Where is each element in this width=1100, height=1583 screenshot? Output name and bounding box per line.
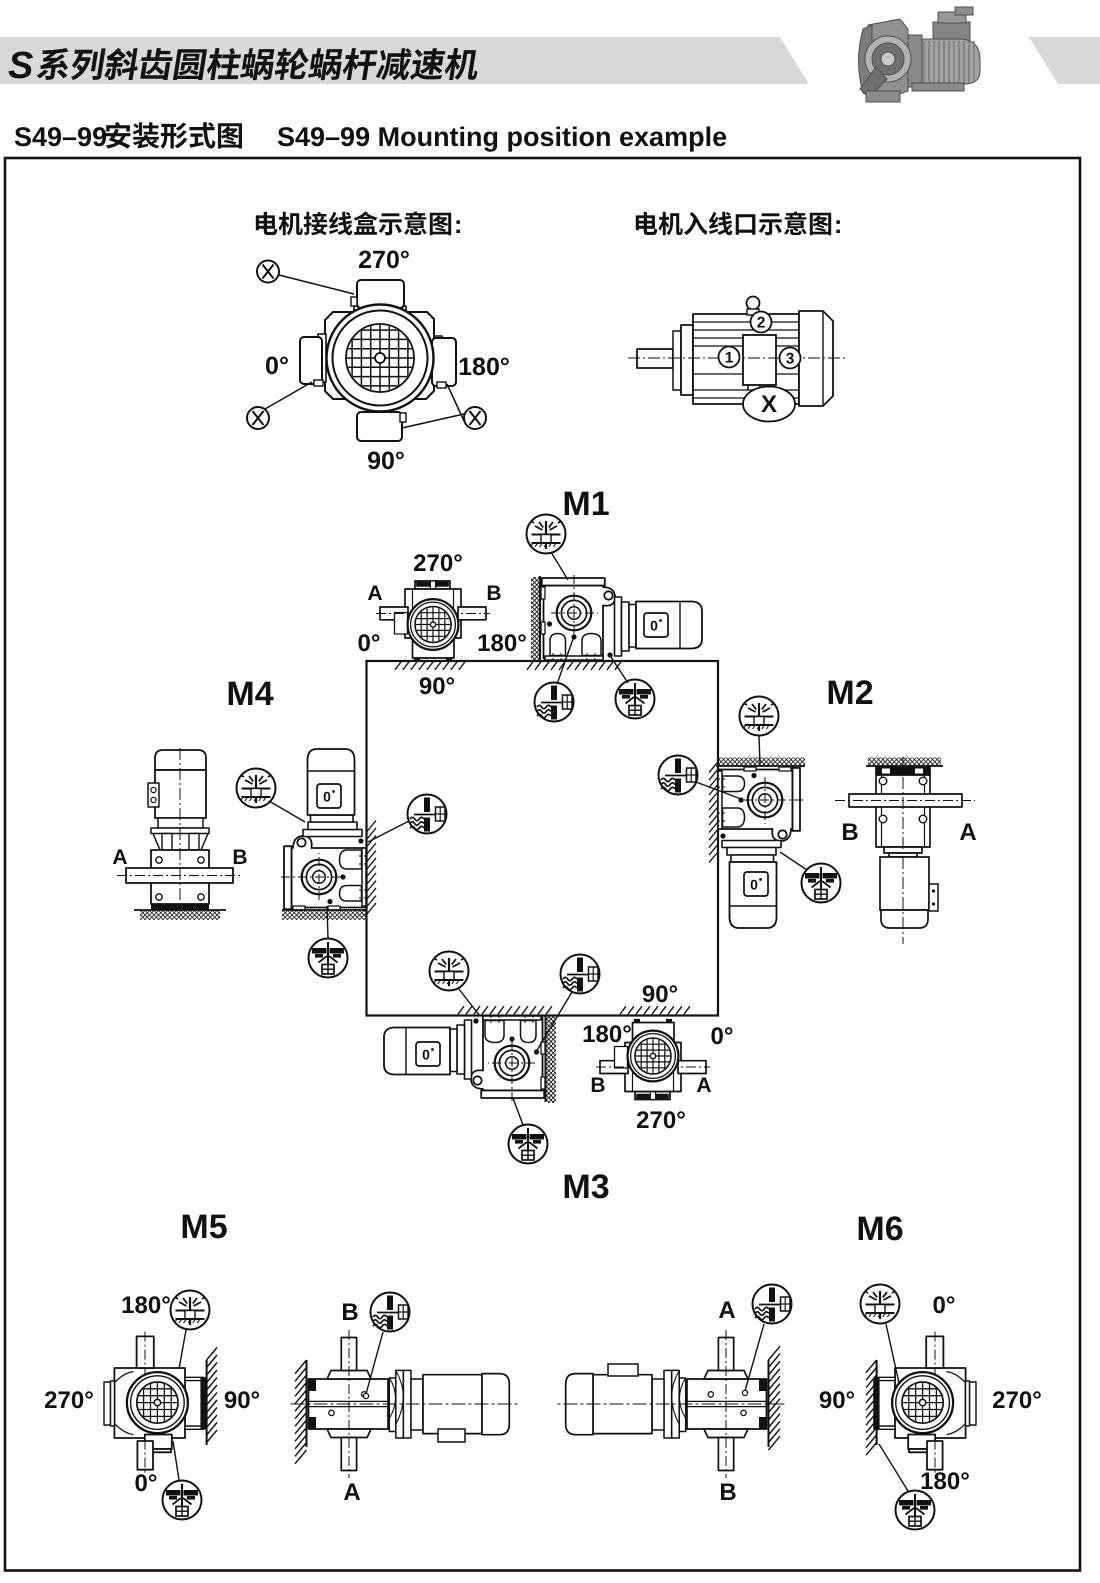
svg-text:B: B	[841, 819, 858, 846]
svg-text:M6: M6	[856, 1210, 903, 1248]
svg-text:180°: 180°	[920, 1468, 970, 1495]
svg-text::: :	[454, 211, 462, 239]
svg-text:0°: 0°	[358, 630, 381, 657]
svg-text:M2: M2	[826, 674, 873, 712]
svg-text:A: A	[959, 819, 976, 846]
svg-text:90°: 90°	[642, 981, 678, 1008]
svg-text:0°: 0°	[711, 1023, 734, 1050]
svg-text:X: X	[761, 391, 777, 418]
svg-text:270°: 270°	[44, 1387, 94, 1414]
svg-text:0°: 0°	[265, 352, 289, 380]
svg-text:0°: 0°	[933, 1292, 956, 1319]
svg-text:1: 1	[725, 350, 734, 367]
svg-text:180°: 180°	[477, 630, 527, 657]
svg-text:A: A	[696, 1074, 711, 1097]
svg-text:90°: 90°	[224, 1387, 260, 1414]
svg-text:270°: 270°	[992, 1387, 1042, 1414]
svg-text:270°: 270°	[413, 550, 463, 577]
svg-text:2: 2	[757, 315, 766, 332]
svg-text:S49–99 Mounting position examp: S49–99 Mounting position example	[277, 122, 727, 152]
svg-text:180°: 180°	[121, 1292, 171, 1319]
svg-text:B: B	[232, 846, 247, 869]
svg-text:S49–99: S49–99	[14, 122, 107, 152]
svg-text:270°: 270°	[358, 246, 410, 274]
svg-text:B: B	[341, 1299, 358, 1326]
svg-text:B: B	[486, 582, 501, 605]
svg-text:M5: M5	[180, 1208, 227, 1246]
svg-text::: :	[834, 211, 842, 239]
svg-text:90°: 90°	[819, 1387, 855, 1414]
svg-text:B: B	[719, 1479, 736, 1506]
svg-text:0°: 0°	[135, 1470, 158, 1497]
svg-text:A: A	[343, 1479, 360, 1506]
svg-text:180°: 180°	[582, 1021, 632, 1048]
svg-text:A: A	[112, 846, 127, 869]
svg-text:90°: 90°	[419, 673, 455, 700]
svg-text:270°: 270°	[636, 1107, 686, 1134]
svg-text:B: B	[590, 1074, 605, 1097]
svg-text:M4: M4	[226, 675, 273, 713]
svg-text:M3: M3	[562, 1168, 609, 1206]
svg-text:180°: 180°	[458, 353, 510, 381]
svg-text:90°: 90°	[367, 447, 405, 475]
svg-text:S: S	[8, 45, 33, 87]
svg-text:3: 3	[786, 351, 795, 368]
svg-text:A: A	[718, 1297, 735, 1324]
svg-text:A: A	[367, 582, 382, 605]
svg-text:M1: M1	[562, 485, 609, 523]
